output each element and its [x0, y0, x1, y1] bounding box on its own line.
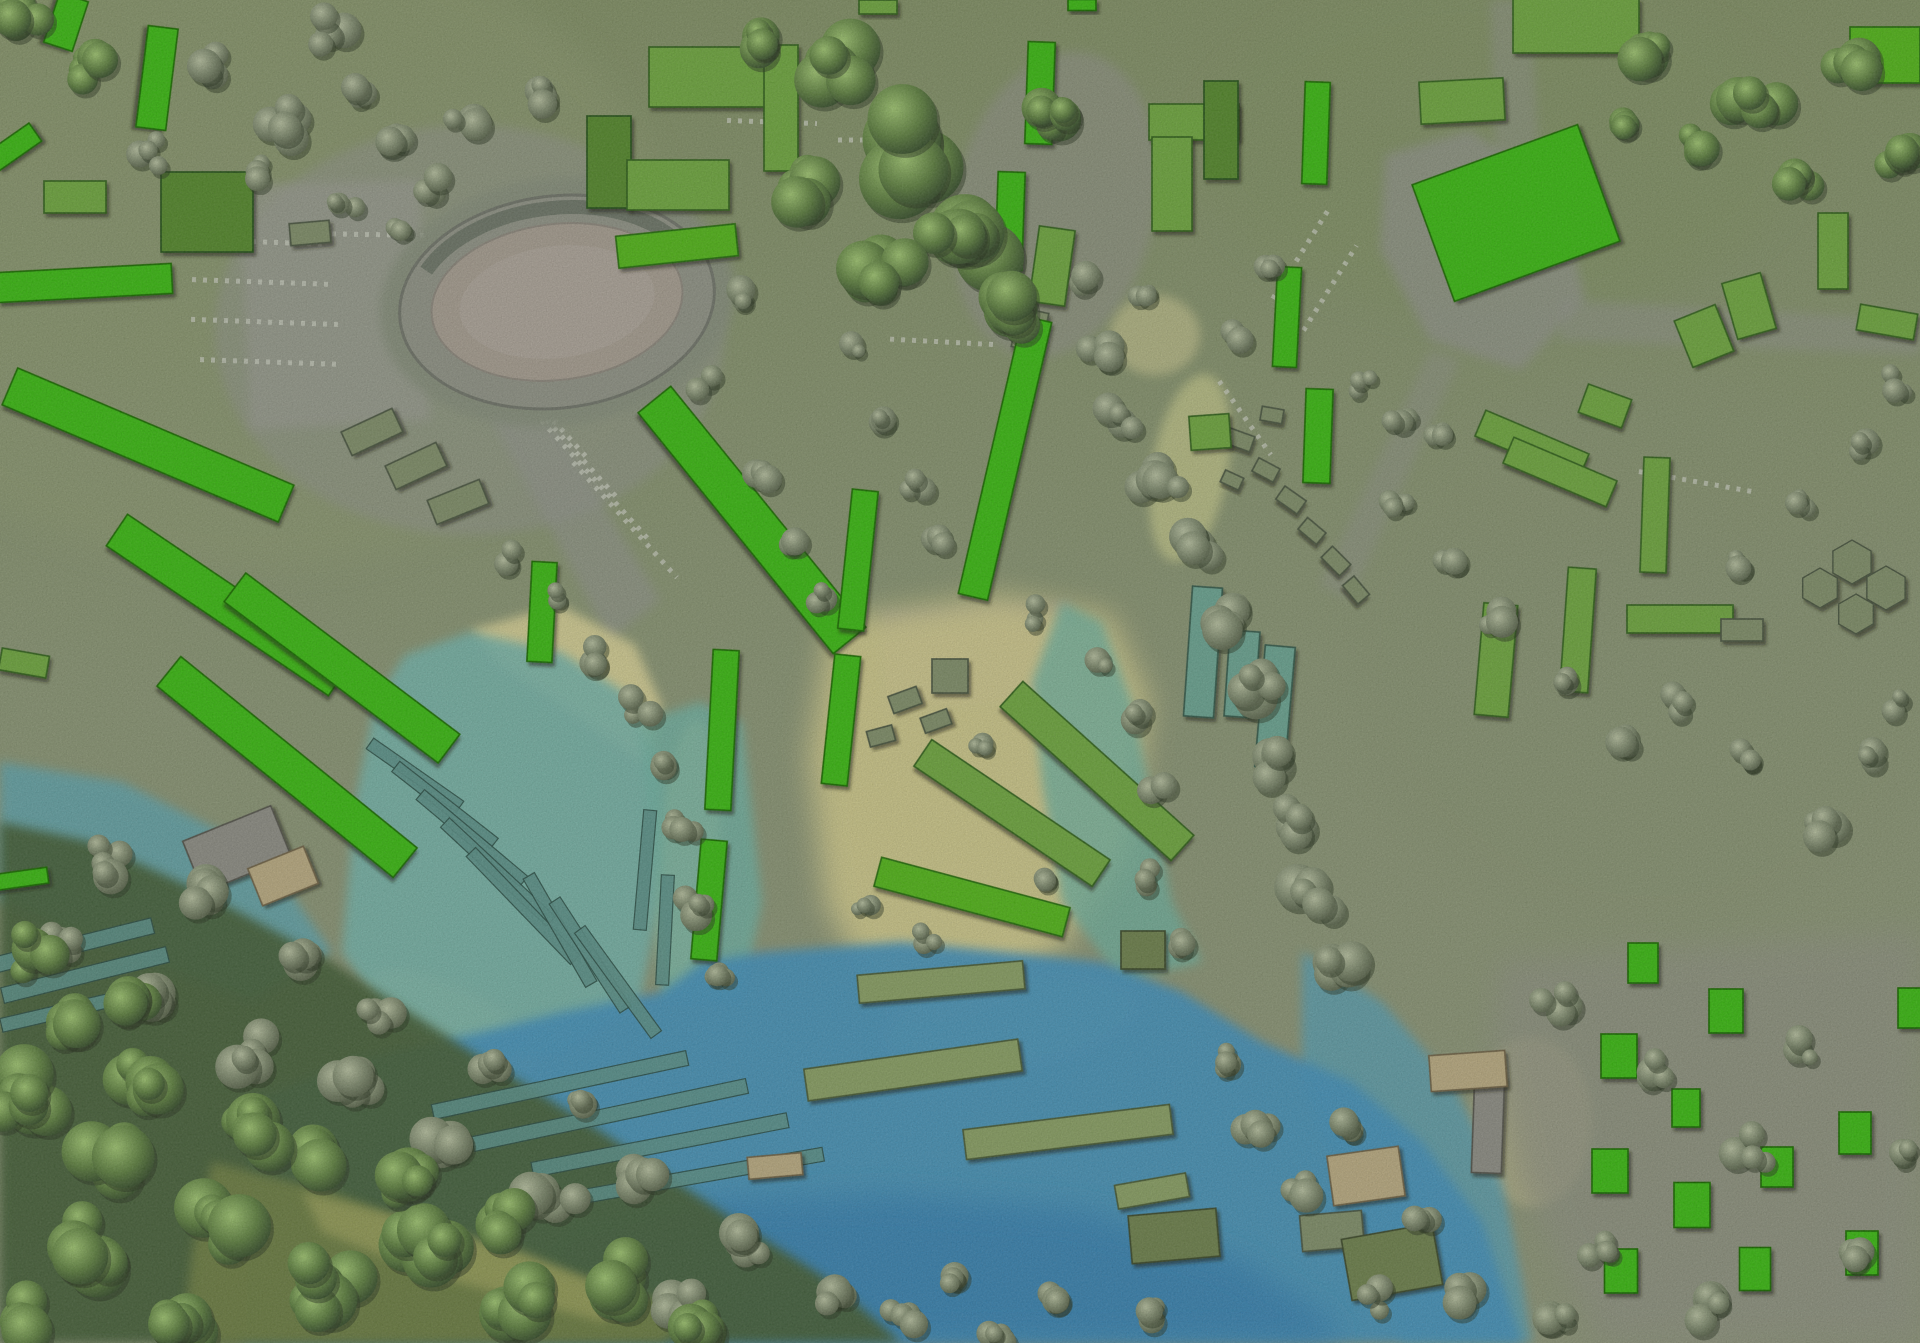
noise-overlay-light [0, 0, 1920, 1343]
lidar-map-canvas [0, 0, 1920, 1343]
lidar-map-root [0, 0, 1920, 1343]
